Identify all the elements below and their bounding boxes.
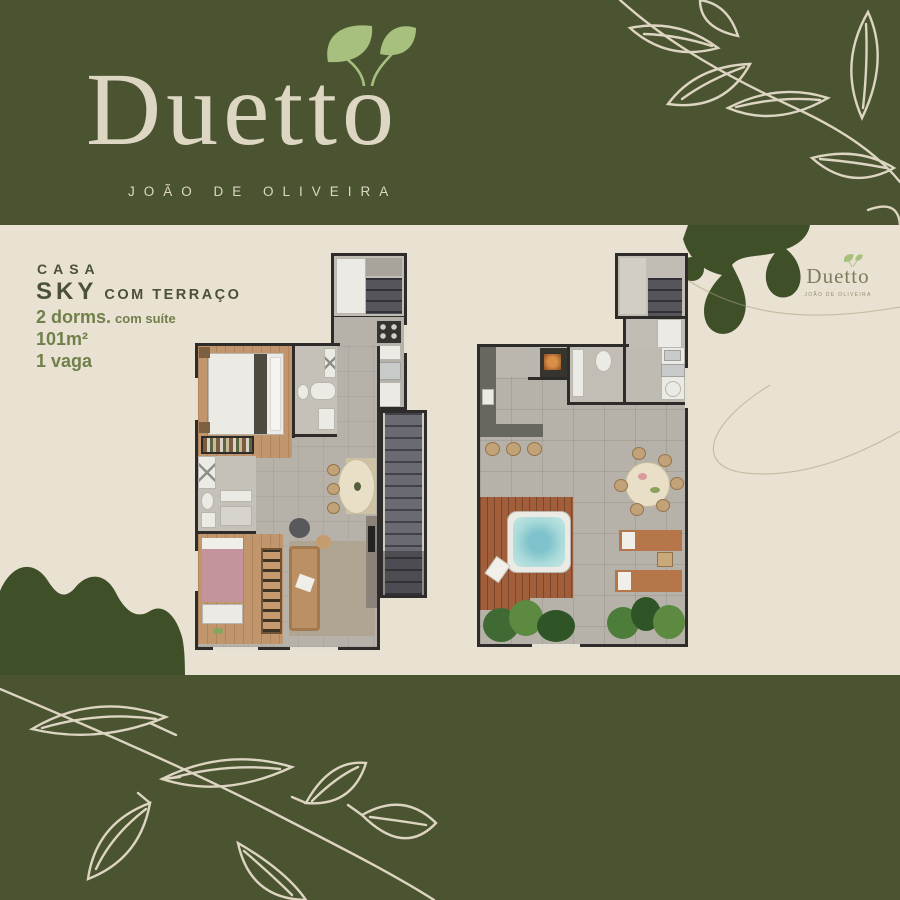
fp1-slippers	[213, 628, 223, 634]
watermark-tagline: JOÃO DE OLIVEIRA	[795, 292, 881, 298]
fp2-window	[532, 644, 580, 647]
fp1-stair-upper-floor	[366, 258, 402, 276]
fp1-stove	[377, 321, 401, 343]
fp2-dining-chair	[670, 477, 684, 490]
fp2-toilet	[595, 350, 612, 372]
fp2-sun-lounger	[619, 530, 682, 551]
fp2-dining-chair	[630, 503, 644, 516]
fp1-oven	[377, 345, 401, 360]
unit-category: CASA	[37, 261, 101, 277]
spec-bedrooms-value: 2 dorms.	[36, 307, 111, 327]
fp2-bar-counter	[480, 424, 543, 437]
fp2-plants	[607, 597, 685, 643]
fp1-dining-chair	[327, 483, 340, 495]
fp1-nightstand	[199, 422, 210, 433]
fp1-nightstand	[199, 347, 210, 358]
fp1-external-stairs	[380, 410, 427, 598]
fp1-single-bed	[202, 538, 243, 602]
fp1-washer	[201, 512, 216, 528]
fp2-dining-chair	[614, 479, 628, 492]
fp2-terrace	[477, 347, 688, 647]
fp1-window	[195, 551, 198, 591]
blob-art-left	[0, 547, 185, 675]
fp2-bar-stool	[485, 442, 500, 456]
fp2-lounger-towel	[618, 572, 631, 590]
fp2-lounger-towel	[622, 532, 635, 549]
branch-art-bottom	[0, 675, 470, 900]
spec-bedrooms: 2 dorms.com suíte	[36, 307, 176, 329]
branch-art-top-right	[600, 0, 900, 228]
fp2-outdoor-sink	[482, 389, 494, 405]
spec-bedrooms-note: com suíte	[115, 311, 176, 326]
header-band: Duetto JOÃO DE OLIVEIRA	[0, 0, 900, 225]
fp1-bed-throw	[254, 354, 267, 434]
fp2-stairs	[648, 278, 682, 316]
fp1-sofa	[289, 546, 320, 631]
fp2-wall-segment	[528, 377, 567, 380]
spec-area-value: 101m²	[36, 329, 88, 349]
fp1-suite-closet	[324, 348, 336, 378]
fp2-side-table	[657, 552, 673, 567]
content-band: CASA SKYCOM TERRAÇO 2 dorms.com suíte 10…	[0, 225, 900, 675]
fp1-dining-table	[338, 459, 375, 514]
fp1-master-bed	[208, 353, 284, 435]
spec-parking: 1 vaga	[36, 351, 176, 373]
spec-area: 101m²	[36, 329, 176, 351]
fp2-upper-counter	[657, 319, 682, 350]
spec-parking-value: 1 vaga	[36, 351, 92, 371]
floorplan-terrace-level	[477, 253, 688, 647]
fp1-window	[290, 647, 338, 650]
fp2-bar-stool	[506, 442, 521, 456]
fp2-counter-sink	[664, 350, 681, 361]
brand-logo: Duetto	[86, 58, 399, 162]
fp2-bar-stool	[527, 442, 542, 456]
fp1-log-stool	[316, 535, 331, 549]
fp1-stair-landing-dark	[383, 551, 424, 595]
fp1-single-bed-pillow	[202, 538, 243, 549]
brand-tagline: JOÃO DE OLIVEIRA	[128, 184, 397, 199]
fp2-wall-segment	[567, 402, 685, 405]
fp2-dining-chair	[632, 447, 646, 460]
fp2-plants	[483, 600, 578, 644]
fp1-sofa-cushion	[295, 574, 315, 593]
unit-name: SKY	[36, 278, 97, 305]
fp1-entry-stairwell	[331, 253, 407, 319]
fp1-tv	[368, 526, 375, 552]
fp1-tv-board	[366, 516, 377, 608]
fp2-grill-fire	[544, 354, 561, 370]
fp2-fridge	[661, 364, 685, 377]
fp1-kitchen-sink	[377, 362, 401, 380]
fp2-stairwell	[615, 253, 688, 319]
watermark-leaves-icon	[842, 253, 864, 267]
plant-icon	[653, 605, 685, 639]
fp2-stair-landing	[620, 258, 646, 314]
fp1-dining-chair	[327, 502, 340, 514]
fp1-stair-landing	[336, 258, 366, 314]
fp1-main-area	[195, 346, 380, 650]
fp2-hot-tub	[507, 511, 571, 573]
fp1-suite-bathtub	[310, 382, 336, 400]
fp1-bed-pillows	[270, 357, 281, 431]
fp1-side-table	[289, 518, 310, 538]
fp1-window	[213, 647, 258, 650]
fp1-entry-stairs	[366, 278, 402, 314]
fp1-bathroom-sink	[220, 490, 252, 502]
fp2-round-basin	[665, 381, 681, 397]
fp1-wall-segment	[295, 434, 337, 437]
fp1-bookshelf	[261, 548, 282, 634]
fp1-suite-washbasin	[318, 408, 335, 430]
fp1-kitchen-counter	[377, 382, 401, 407]
fp1-window	[404, 325, 407, 353]
fp2-hot-tub-water	[513, 517, 565, 567]
poster: Duetto JOÃO DE OLIVEIRA CASA SKYC	[0, 0, 900, 900]
fp2-table-dish	[638, 473, 647, 480]
brand-watermark: Duetto JOÃO DE OLIVEIRA	[795, 253, 881, 298]
fp2-barbecue-grill	[540, 348, 567, 378]
watermark-name: Duetto	[795, 264, 881, 289]
floorplan-lower-level	[195, 253, 430, 650]
fp1-bench	[202, 604, 243, 624]
unit-specs: 2 dorms.com suíte 101m² 1 vaga	[36, 307, 176, 373]
fp1-laundry-counter	[220, 506, 252, 526]
fp2-upper-hall	[623, 319, 688, 350]
fp1-dining-chair	[327, 464, 340, 476]
fp2-dining-chair	[656, 499, 670, 512]
fp1-window	[195, 378, 198, 420]
plant-icon	[537, 610, 575, 642]
fp2-dining-chair	[658, 454, 672, 467]
fp1-wardrobe	[201, 436, 254, 454]
fp2-table-dish	[650, 487, 660, 493]
fp2-window	[685, 368, 688, 408]
fp1-table-plant	[354, 482, 361, 491]
fp1-suite-toilet	[297, 384, 309, 400]
fp2-bathroom-sink	[572, 349, 584, 397]
footer-band	[0, 675, 900, 900]
fp1-shower	[198, 456, 216, 489]
fp2-sun-lounger	[615, 570, 682, 592]
fp1-toilet	[201, 492, 214, 510]
